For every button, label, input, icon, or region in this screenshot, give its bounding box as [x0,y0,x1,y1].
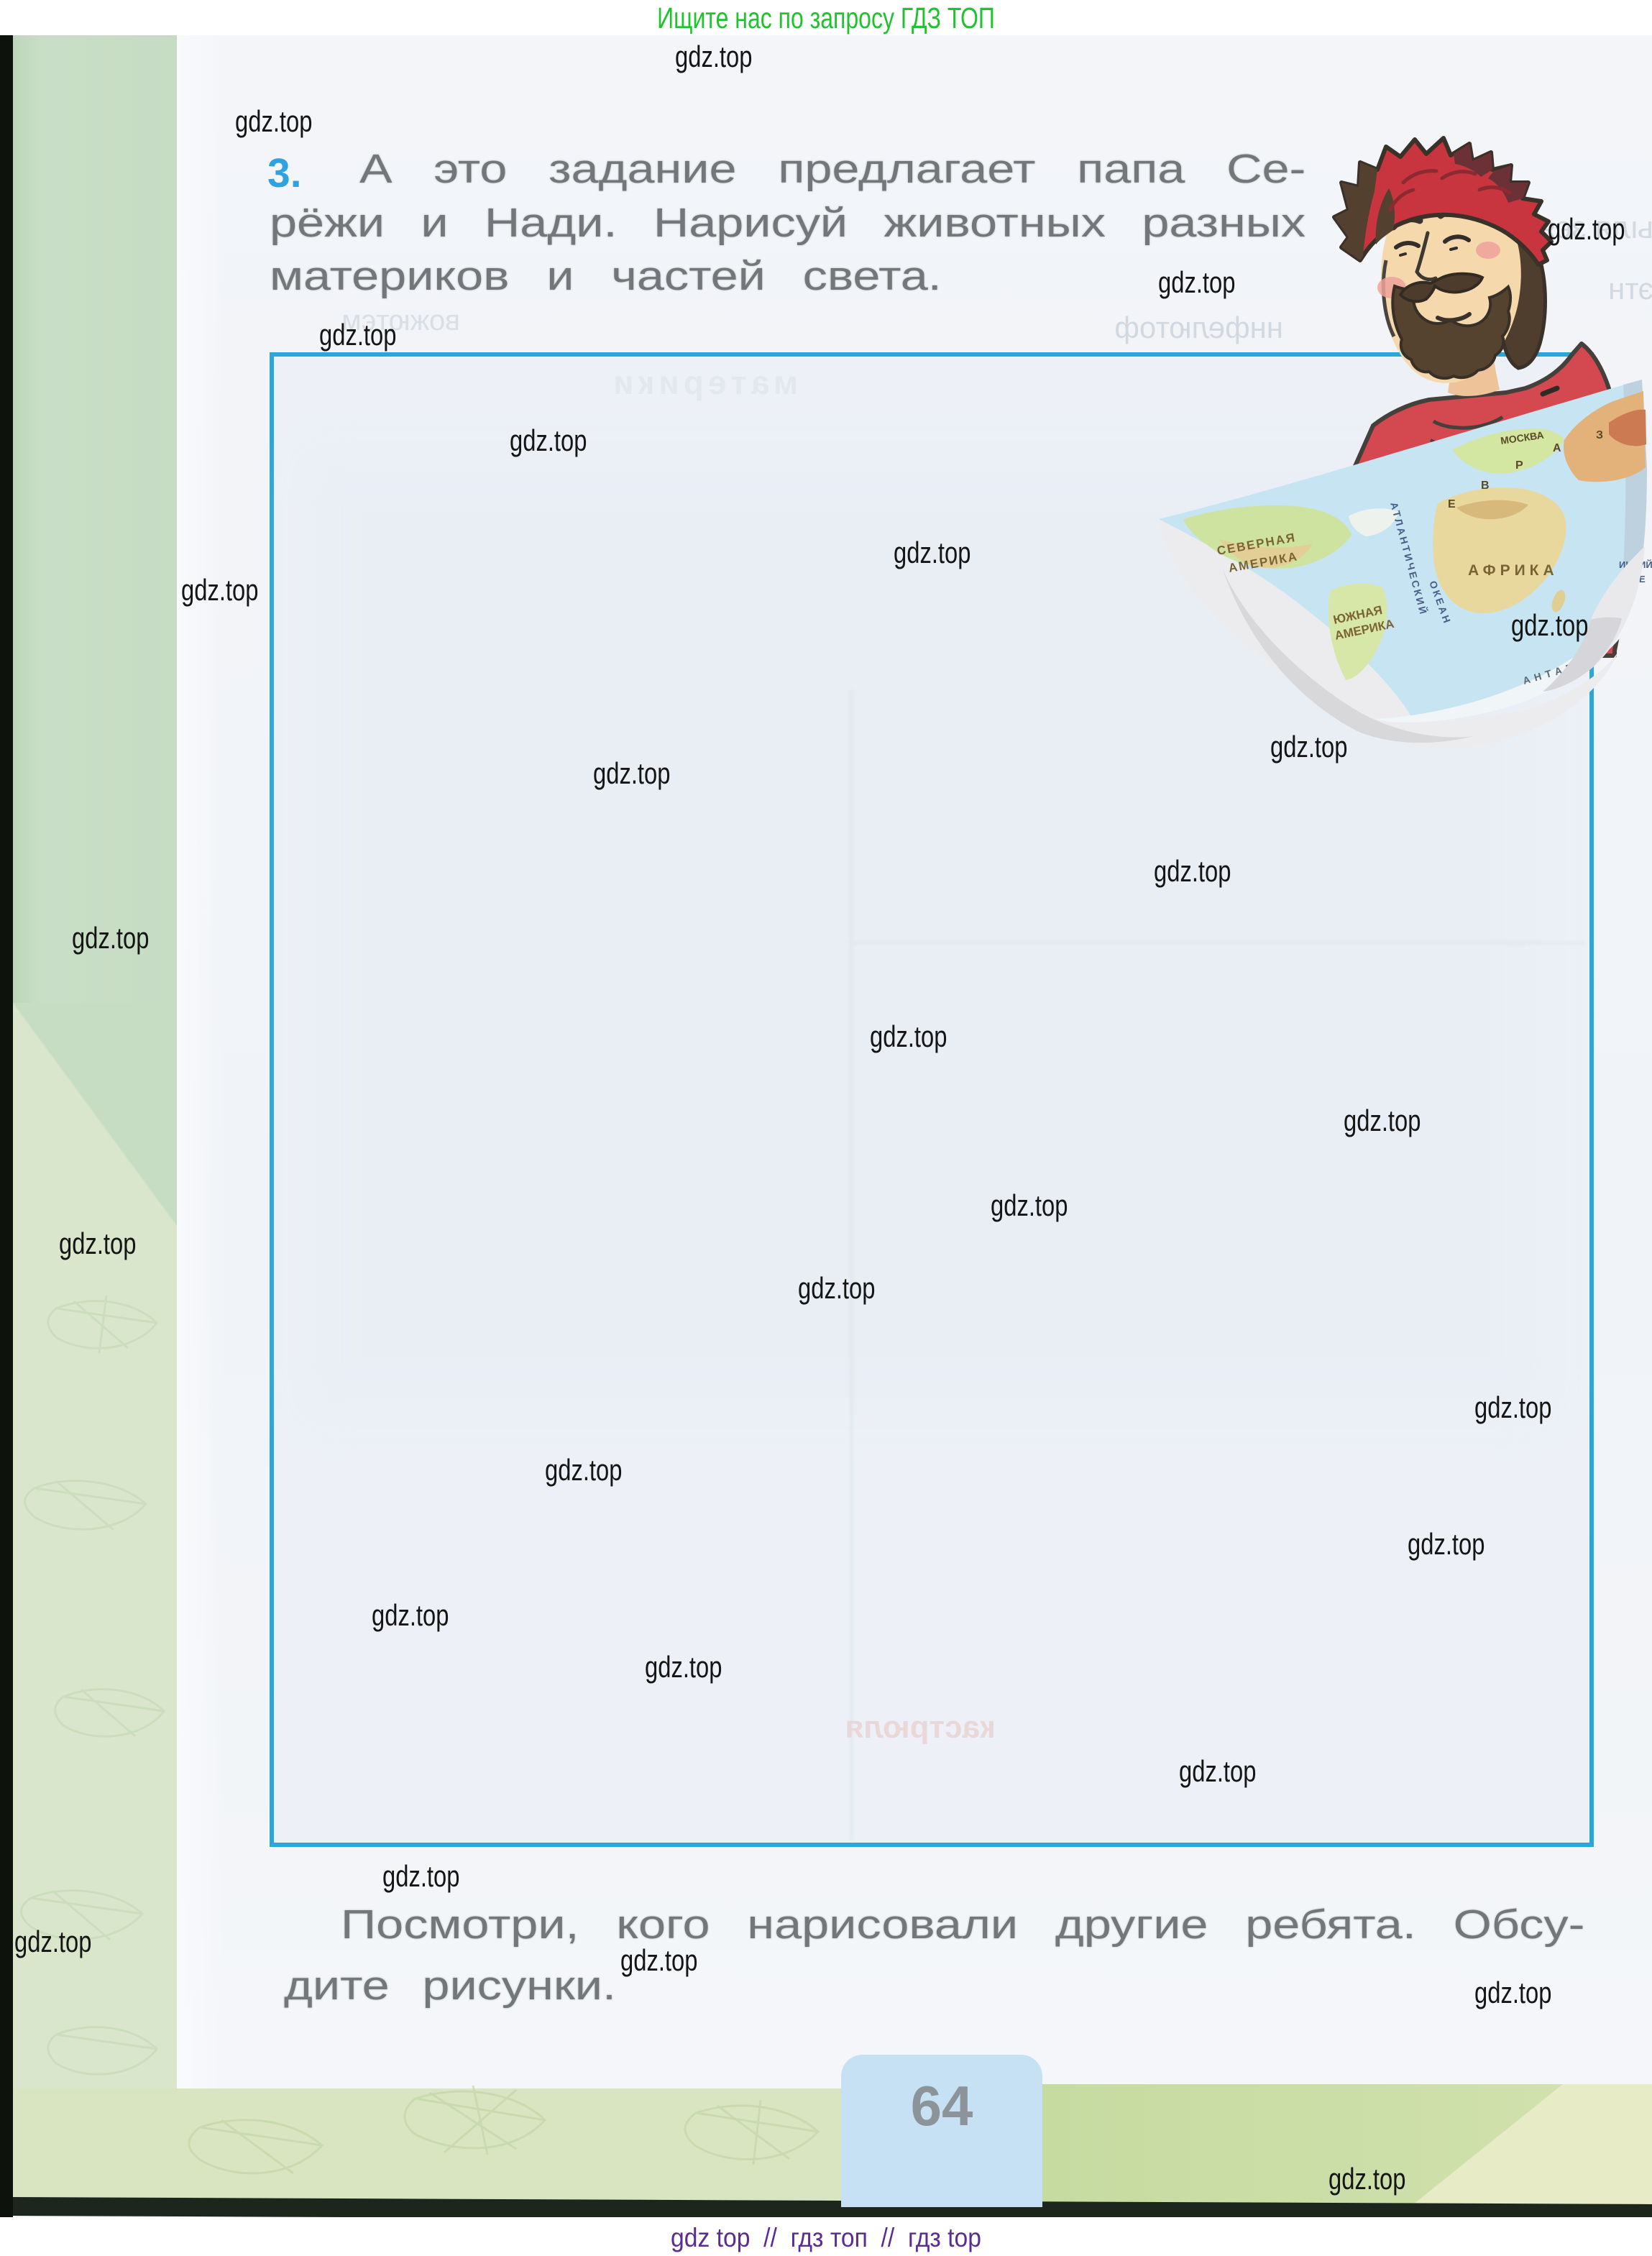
svg-text:АФРИКА: АФРИКА [1468,562,1559,579]
svg-text:Р: Р [1515,459,1523,472]
svg-text:Е: Е [1448,498,1456,510]
svg-text:В: В [1481,480,1490,492]
svg-text:З: З [1596,429,1603,441]
svg-text:А: А [1553,442,1561,454]
